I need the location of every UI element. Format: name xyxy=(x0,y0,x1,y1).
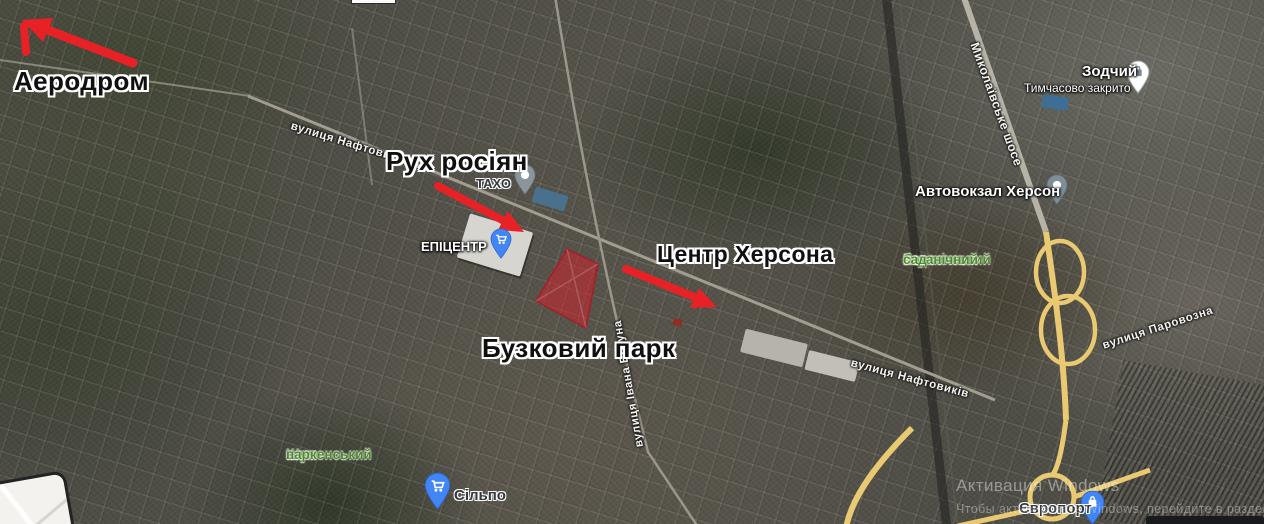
epicentr-shopping-cart-pin-icon[interactable] xyxy=(490,228,512,259)
poi-label-avtovokzal[interactable]: Автовокзал Херсон xyxy=(915,183,1060,200)
poi-label-zodchiy[interactable]: Зодчий xyxy=(1082,63,1137,80)
cut-off-dark-bar xyxy=(1146,516,1264,524)
annotation-layer xyxy=(0,0,1264,524)
poi-status-zodchiy: Тимчасово закрито xyxy=(1024,81,1131,95)
cut-off-tooltip xyxy=(351,0,396,4)
satellite-map[interactable]: ТАХО ЕПІЦЕНТР Зодчий Тимчасово закрито А… xyxy=(0,0,1264,524)
windows-activation-watermark: Активация Windows xyxy=(956,476,1119,496)
poi-label-taxo[interactable]: ТАХО xyxy=(476,176,511,191)
arrow-to-center xyxy=(626,269,717,308)
windows-activation-watermark-subtext: Чтобы активировать Windows, перейдите в … xyxy=(956,502,1264,516)
poi-label-epicentr[interactable]: ЕПІЦЕНТР xyxy=(421,239,487,254)
arrow-to-aerodrome xyxy=(22,18,133,63)
annotation-buzkovyi-park: Бузковий парк xyxy=(482,333,675,364)
poi-label-silpo[interactable]: Сільпо xyxy=(454,487,506,504)
annotation-russian-movement: Рух росіян xyxy=(386,146,528,177)
arrow-russian-movement xyxy=(438,186,524,232)
annotation-kherson-center: Центр Херсона xyxy=(657,241,833,268)
silpo-shopping-cart-pin-icon[interactable] xyxy=(424,472,451,510)
park-label-line: парк xyxy=(286,447,317,462)
park-label-line: сад xyxy=(903,252,927,267)
annotation-aerodrome: Аеродром xyxy=(14,66,149,97)
highlighted-area-polygon xyxy=(536,249,598,328)
